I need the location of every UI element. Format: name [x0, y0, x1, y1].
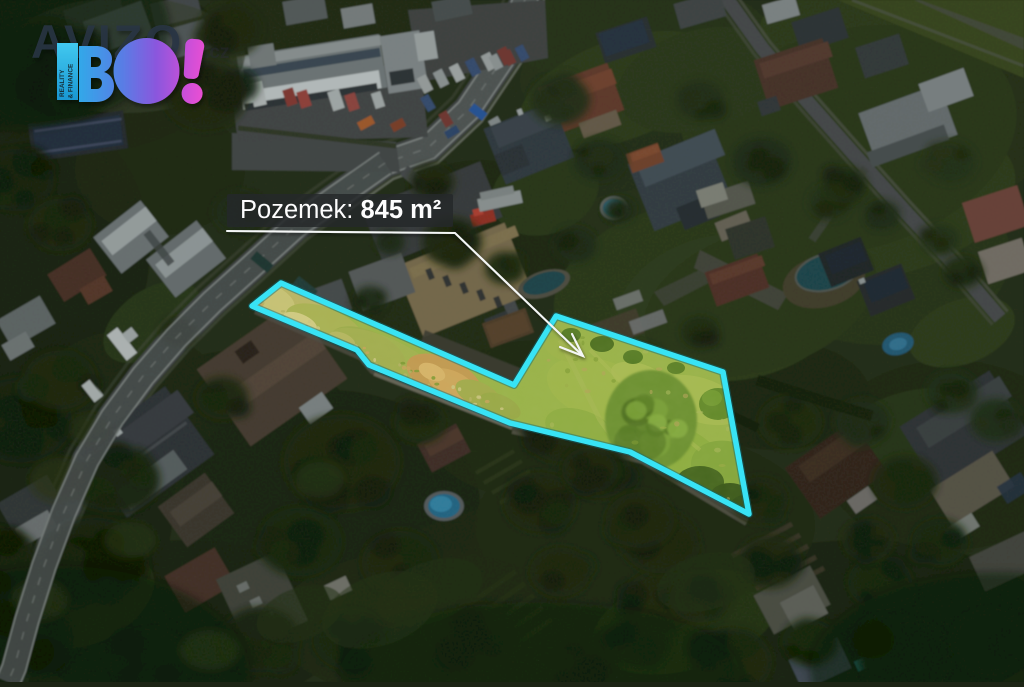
- svg-text:Pozemek: 845 m²: Pozemek: 845 m²: [240, 196, 441, 224]
- svg-text:REALITY: REALITY: [59, 69, 66, 97]
- svg-text:& FINANCE: & FINANCE: [68, 63, 75, 99]
- svg-text:.cz: .cz: [204, 42, 229, 63]
